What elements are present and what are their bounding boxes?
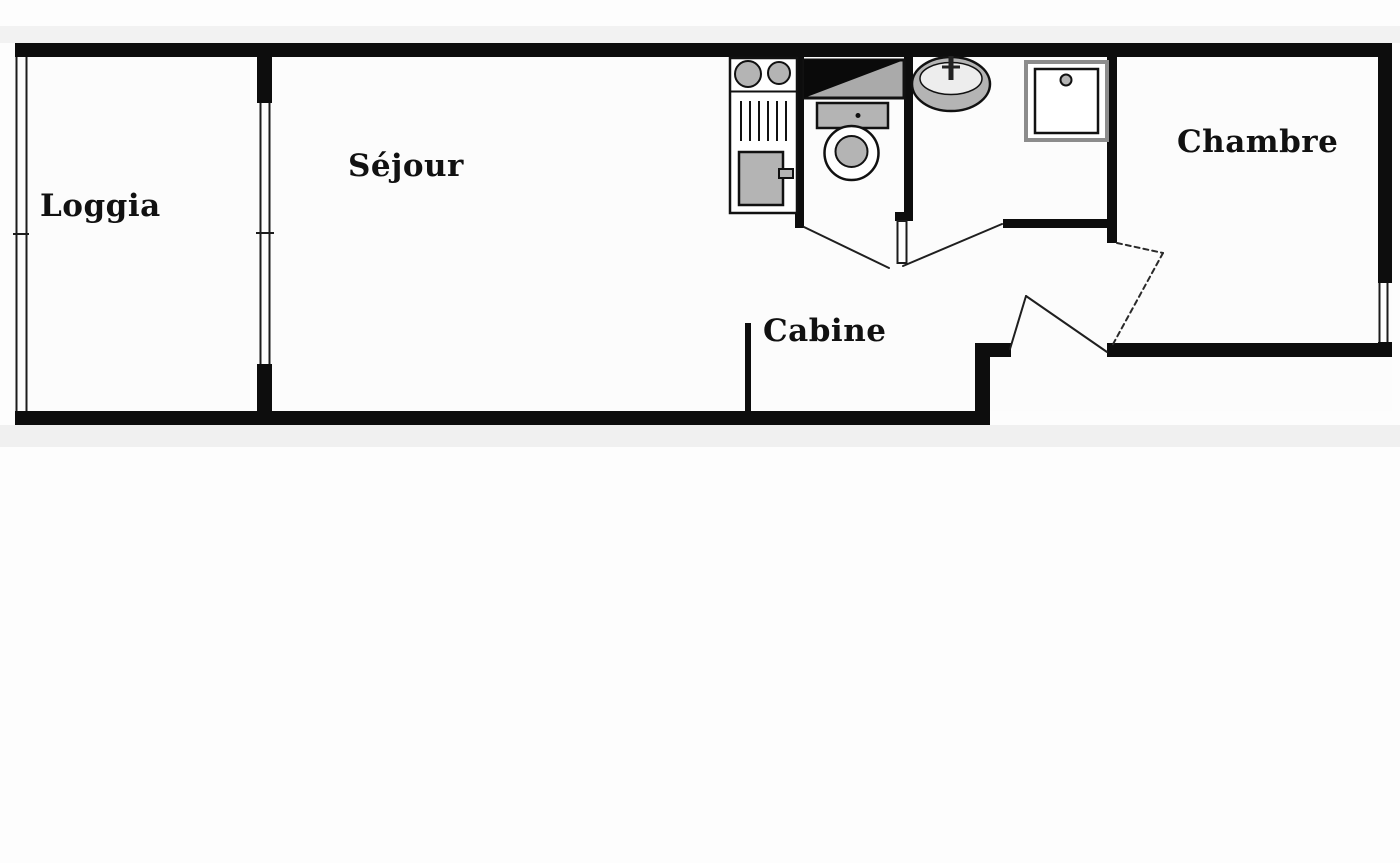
wall-right-upper	[1378, 43, 1392, 283]
wall-bottom-left	[15, 411, 990, 425]
bottom-gray-band	[0, 425, 1400, 447]
room-label-chambre: Chambre	[1177, 124, 1338, 160]
wall-bottom-chambre	[1107, 343, 1392, 357]
shower-tray-icon	[1026, 62, 1107, 140]
wall-top	[15, 43, 1392, 57]
room-label-sejour: Séjour	[348, 148, 464, 184]
room-label-cabine: Cabine	[763, 313, 886, 349]
kitchen-unit	[730, 58, 797, 213]
wall-right-lower	[1378, 342, 1392, 357]
wall-step-horizontal	[975, 343, 1011, 357]
floor-plan-drawing: Loggia Séjour Cabine Chambre	[0, 0, 1400, 863]
plan-interior-background	[15, 57, 1392, 411]
wall-cabine-stub	[745, 323, 751, 415]
wall-loggia-stub-bottom	[257, 364, 272, 411]
wall-loggia-stub-top	[257, 57, 272, 103]
room-label-loggia: Loggia	[40, 188, 161, 224]
top-gray-band	[0, 26, 1400, 43]
wall-bath-bottom	[1003, 219, 1113, 228]
water-heater-icon	[804, 60, 904, 98]
washbasin-icon	[912, 56, 990, 111]
door-post-icon	[898, 221, 907, 263]
floor-plan-page: Loggia Séjour Cabine Chambre	[0, 0, 1400, 863]
wall-wc-bath-cap	[895, 212, 913, 221]
